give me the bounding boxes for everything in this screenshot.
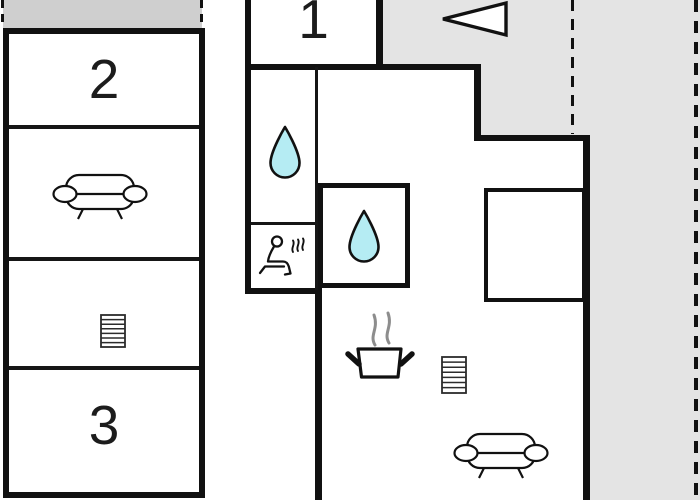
dashed-line-left: [1, 0, 4, 28]
stove-steam-icon: [344, 304, 416, 382]
wall-room1-bottom: [245, 64, 481, 70]
sofa-icon: [453, 423, 549, 481]
wall-room1-right: [376, 0, 383, 70]
wall-terrace-step-horizontal: [474, 135, 590, 141]
wall-main-left: [315, 288, 322, 500]
wall-left-inner: [199, 28, 205, 498]
direction-arrow-icon: [438, 0, 512, 42]
dashed-line-right-edge: [694, 0, 698, 500]
wall-terrace-step-vertical: [474, 64, 481, 141]
room-3-label: 3: [9, 398, 199, 453]
wall-sauna-bottom: [245, 288, 322, 294]
wall-divider-1: [9, 125, 199, 129]
stairs-icon: [100, 314, 126, 348]
closet-box: [484, 188, 586, 302]
wall-divider-3: [9, 366, 199, 370]
water-drop-icon: [268, 124, 302, 180]
sauna-icon: [257, 230, 309, 282]
wall-left-top: [3, 28, 205, 34]
wall-divider-2: [9, 257, 199, 261]
room-1-label: 1: [251, 0, 376, 47]
top-balcony-area: [3, 0, 202, 28]
floor-plan: 1 2 3: [0, 0, 700, 500]
partition-bathroom-bottom: [251, 222, 318, 225]
stairs-icon: [441, 356, 467, 394]
sofa-icon: [52, 164, 148, 222]
wall-left-bottom: [3, 492, 205, 498]
dashed-line-terrace: [571, 0, 574, 134]
water-drop-icon: [347, 208, 381, 264]
room-2-label: 2: [9, 52, 199, 107]
dashed-line-band-right: [200, 0, 203, 27]
